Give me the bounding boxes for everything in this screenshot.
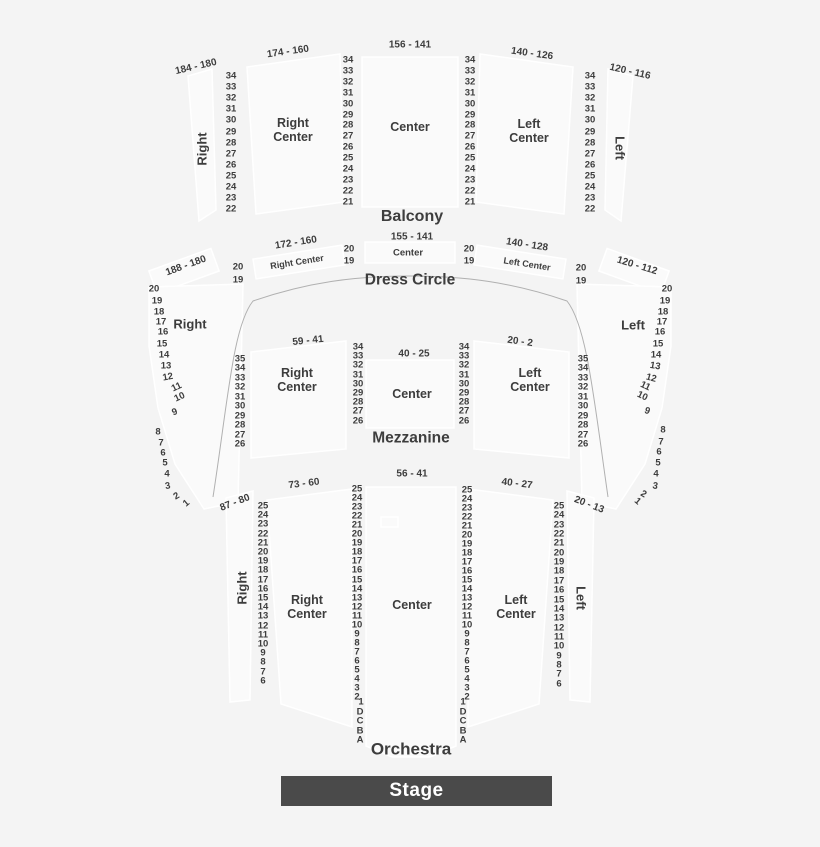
orchestra-title: Orchestra bbox=[371, 739, 451, 758]
balcony-row-numbers: 28 bbox=[585, 138, 596, 149]
center-section-notch bbox=[381, 517, 398, 527]
balcony-row-numbers: 29 bbox=[585, 127, 596, 138]
balcony-row-numbers: 24 bbox=[226, 183, 237, 194]
orchestra-left-label: Left bbox=[573, 586, 588, 610]
orchestra-row-numbers: A bbox=[460, 736, 467, 747]
mezzanine-left-wing-rows: 4 bbox=[653, 470, 658, 481]
stage: Stage bbox=[281, 776, 552, 806]
balcony-row-numbers: 23 bbox=[226, 194, 237, 205]
balcony-row-numbers: 24 bbox=[585, 183, 596, 194]
balcony-center-label: Center bbox=[390, 120, 430, 134]
mezzanine-row-numbers: 26 bbox=[459, 416, 470, 427]
balcony-row-numbers: 28 bbox=[226, 138, 237, 149]
mezzanine-right-wing-label: Right bbox=[173, 318, 206, 333]
mezzanine-right-center-label: Right Center bbox=[277, 366, 317, 394]
balcony-row-numbers: 29 bbox=[226, 127, 237, 138]
orchestra-right-center-label: Right Center bbox=[287, 593, 327, 621]
dress-circle-row-numbers: 19 bbox=[233, 275, 244, 286]
mezzanine-row-numbers: 26 bbox=[235, 440, 246, 451]
balcony-right-label: Right bbox=[196, 132, 211, 165]
mezzanine-center-range: 40 - 25 bbox=[398, 348, 429, 359]
balcony-row-numbers: 21 bbox=[465, 197, 476, 208]
balcony-row-numbers: 33 bbox=[226, 83, 237, 94]
dress-circle-row-numbers: 19 bbox=[464, 257, 475, 268]
balcony-row-numbers: 30 bbox=[585, 116, 596, 127]
dress-circle-title: Dress Circle bbox=[365, 271, 455, 288]
orchestra-right-label: Right bbox=[236, 571, 251, 604]
balcony-center-range: 156 - 141 bbox=[389, 39, 431, 50]
balcony-row-numbers: 22 bbox=[585, 205, 596, 216]
orchestra-row-numbers: 6 bbox=[260, 676, 265, 687]
balcony-row-numbers: 30 bbox=[226, 116, 237, 127]
balcony-row-numbers: 27 bbox=[585, 149, 596, 160]
mezzanine-left-wing-rows: 16 bbox=[655, 328, 666, 339]
balcony-left-label: Left bbox=[612, 136, 627, 160]
balcony-row-numbers: 22 bbox=[226, 205, 237, 216]
mezzanine-row-numbers: 26 bbox=[578, 440, 589, 451]
balcony-row-numbers: 23 bbox=[585, 194, 596, 205]
mezzanine-center-label: Center bbox=[392, 387, 432, 401]
balcony-right-center-label: Right Center bbox=[273, 116, 313, 144]
orchestra-center-section[interactable] bbox=[366, 487, 456, 757]
mezzanine-left-wing-rows: 20 bbox=[662, 285, 673, 296]
orchestra-row-numbers: 6 bbox=[556, 679, 561, 690]
mezzanine-left-center-label: Left Center bbox=[510, 366, 550, 394]
dress-circle-row-numbers: 20 bbox=[464, 245, 475, 256]
mezzanine-right-wing-rows: 20 bbox=[149, 285, 160, 296]
dress-circle-row-numbers: 20 bbox=[233, 263, 244, 274]
balcony-row-numbers: 21 bbox=[343, 197, 354, 208]
balcony-row-numbers: 27 bbox=[226, 149, 237, 160]
dress-circle-row-numbers: 20 bbox=[576, 264, 587, 275]
balcony-row-numbers: 34 bbox=[585, 72, 596, 83]
balcony-row-numbers: 25 bbox=[226, 172, 237, 183]
dress-circle-center-label: Center bbox=[393, 249, 423, 260]
mezzanine-left-wing-rows: 13 bbox=[649, 361, 661, 373]
dress-circle-row-numbers: 20 bbox=[344, 245, 355, 256]
dress-circle-row-numbers: 19 bbox=[576, 276, 587, 287]
balcony-row-numbers: 31 bbox=[226, 105, 237, 116]
orchestra-left-center-label: Left Center bbox=[496, 593, 536, 621]
balcony-row-numbers: 25 bbox=[585, 172, 596, 183]
balcony-row-numbers: 31 bbox=[585, 105, 596, 116]
mezzanine-left-wing-label: Left bbox=[621, 319, 645, 334]
orchestra-center-range: 56 - 41 bbox=[396, 468, 427, 479]
mezzanine-row-numbers: 26 bbox=[353, 416, 364, 427]
balcony-left-center-label: Left Center bbox=[509, 117, 549, 145]
mezzanine-right-wing-rows: 4 bbox=[164, 470, 169, 481]
orchestra-center-label: Center bbox=[392, 598, 432, 612]
mezzanine-left-wing-rows: 8 bbox=[660, 426, 665, 437]
balcony-row-numbers: 34 bbox=[226, 72, 237, 83]
mezzanine-left-center-section[interactable] bbox=[474, 341, 569, 458]
balcony-row-numbers: 33 bbox=[585, 83, 596, 94]
mezzanine-right-wing-rows: 16 bbox=[158, 328, 169, 339]
balcony-row-numbers: 32 bbox=[585, 94, 596, 105]
stage-label: Stage bbox=[389, 780, 443, 802]
orchestra-row-numbers: A bbox=[357, 736, 364, 747]
dress-circle-center-range: 155 - 141 bbox=[391, 231, 433, 242]
balcony-row-numbers: 26 bbox=[226, 160, 237, 171]
balcony-row-numbers: 26 bbox=[585, 160, 596, 171]
mezzanine-title: Mezzanine bbox=[372, 429, 450, 446]
mezzanine-right-center-section[interactable] bbox=[251, 341, 346, 458]
balcony-row-numbers: 32 bbox=[226, 94, 237, 105]
seating-chart: Stage 184 - 180Right174 - 160Right Cente… bbox=[0, 0, 820, 847]
dress-circle-row-numbers: 19 bbox=[344, 257, 355, 268]
balcony-title: Balcony bbox=[381, 208, 443, 226]
